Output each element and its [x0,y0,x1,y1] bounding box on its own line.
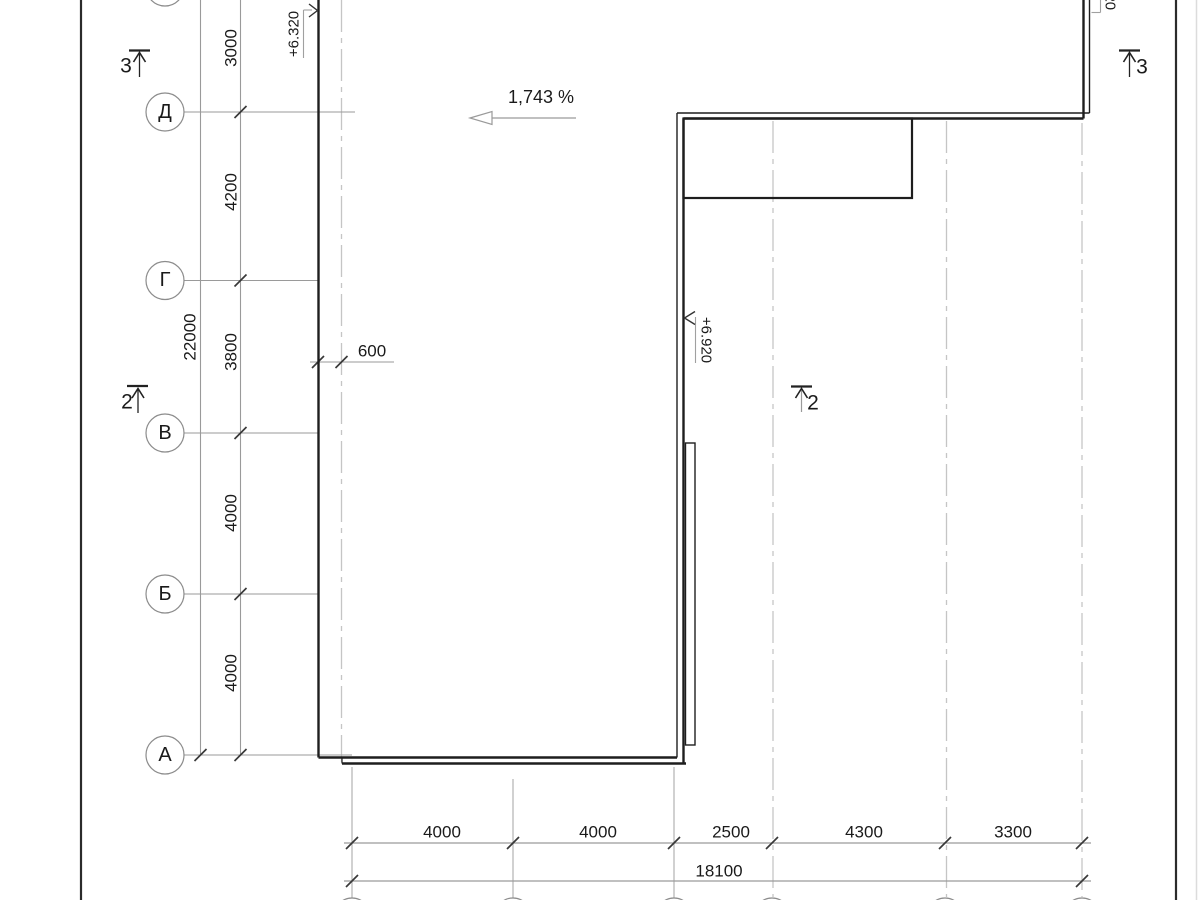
elevation-leader-top-left [304,4,318,58]
sheet-frame [81,0,1197,900]
axis-label-v: В [158,423,171,443]
dimension-ticks [195,106,1089,887]
dim-bottom-4000-2: 4000 [579,824,617,841]
axis-label-g: Г [160,270,171,290]
dim-bottom-4000-1: 4000 [423,824,461,841]
section-mark-3-left [129,51,150,78]
dim-3800: 3800 [223,333,240,371]
section-label-2-center: 2 [807,393,819,414]
axis-label-a: А [158,745,171,765]
elevation-top-right-partial: +6.320 [1103,0,1118,10]
axis-label-d: Д [158,102,172,122]
dim-4000-lower: 4000 [223,654,240,692]
extension-lines [352,767,674,898]
roof-plan-drawing: Д Г В Б А 3000 4200 3800 4000 4000 22000… [0,0,1200,900]
roof-outline-inner [319,0,1084,764]
dim-bottom-4300: 4300 [845,824,883,841]
section-label-3-left: 3 [120,56,132,77]
dim-18100-total: 18100 [695,863,742,880]
slope-arrow-icon [470,112,576,125]
dim-600-overhang: 600 [358,343,386,360]
canopy-outline [684,119,913,199]
dim-3000: 3000 [223,29,240,67]
axis-circle-top-partial [146,0,184,6]
dim-4000-upper: 4000 [223,494,240,532]
dim-22000-total: 22000 [182,313,199,360]
dim-bottom-3300: 3300 [994,824,1032,841]
section-label-3-right: 3 [1136,57,1148,78]
dim-4200: 4200 [223,173,240,211]
left-dimension-lines [201,0,395,755]
slope-label: 1,743 % [508,88,574,106]
wall-strip [686,443,696,745]
roof-outline-outer [677,0,1090,758]
roof-outline [319,0,1090,764]
section-label-2-left: 2 [121,392,133,413]
elevation-mid: +6.920 [699,317,714,363]
row-axis-lines [184,112,355,755]
drawing-linework [0,0,1200,900]
dim-bottom-2500: 2500 [712,824,750,841]
elevation-top-left: +6.320 [287,11,302,57]
elevation-leader-mid [685,312,696,364]
axis-circles [146,0,1100,900]
axis-label-b: Б [158,584,171,604]
elevation-leader-top-right [1092,0,1101,13]
